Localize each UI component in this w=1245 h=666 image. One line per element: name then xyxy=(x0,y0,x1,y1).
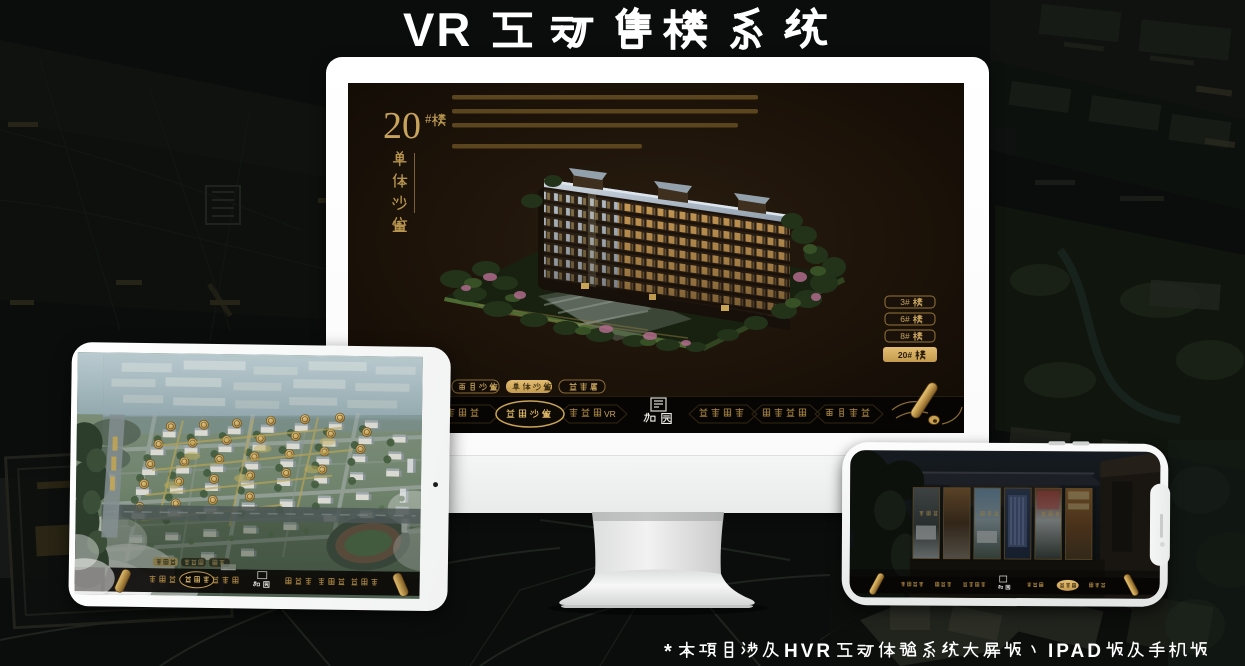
svg-text:HVR: HVR xyxy=(784,641,833,662)
svg-text:20: 20 xyxy=(383,105,421,147)
svg-text:6#: 6# xyxy=(900,314,910,324)
svg-text:3#: 3# xyxy=(900,297,910,307)
svg-text:20#: 20# xyxy=(898,350,912,360)
svg-text:*: * xyxy=(664,641,672,663)
svg-text:VR: VR xyxy=(403,4,472,54)
svg-text:IPAD: IPAD xyxy=(1048,641,1104,662)
svg-text:#: # xyxy=(425,111,432,126)
svg-text:VR: VR xyxy=(604,409,616,419)
svg-text:8#: 8# xyxy=(900,331,910,341)
